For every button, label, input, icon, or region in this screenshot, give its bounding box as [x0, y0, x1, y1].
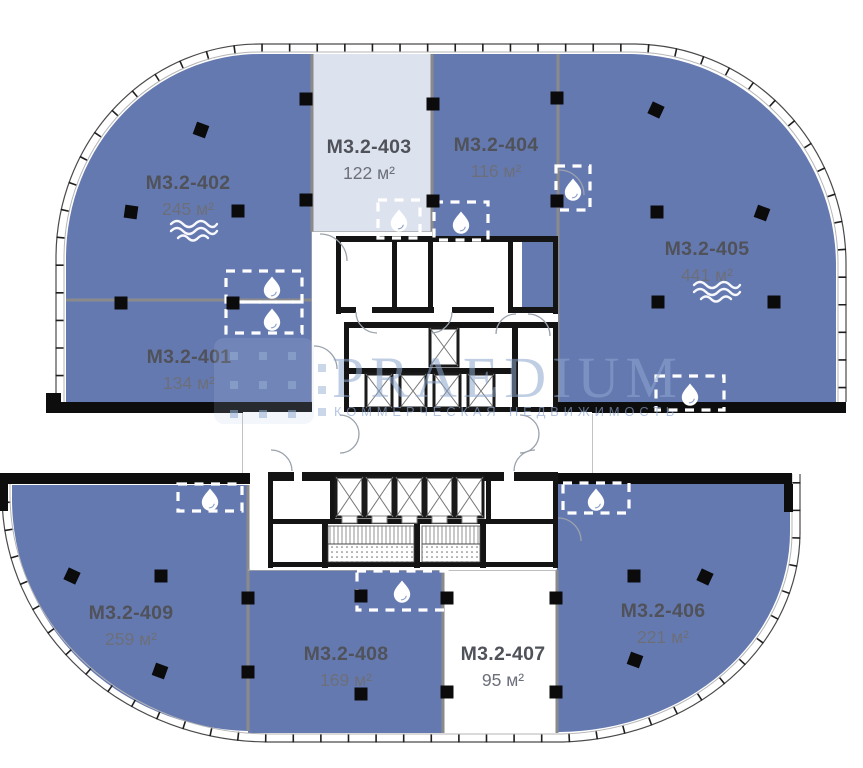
stairs-icon: [328, 526, 480, 562]
floor-plan: M3.2-402 245 м² M3.2-403 122 м² M3.2-404…: [0, 0, 863, 768]
unit-M3.2-405[interactable]: [558, 54, 836, 403]
unit-M3.2-407[interactable]: [443, 570, 557, 733]
floor-plan-drawing: [0, 0, 863, 768]
unit-M3.2-402[interactable]: [66, 54, 312, 300]
unit-M3.2-406[interactable]: [557, 484, 790, 732]
unit-M3.2-403[interactable]: [312, 54, 432, 232]
unit-M3.2-409[interactable]: [12, 485, 248, 731]
unit-M3.2-408[interactable]: [248, 570, 443, 733]
